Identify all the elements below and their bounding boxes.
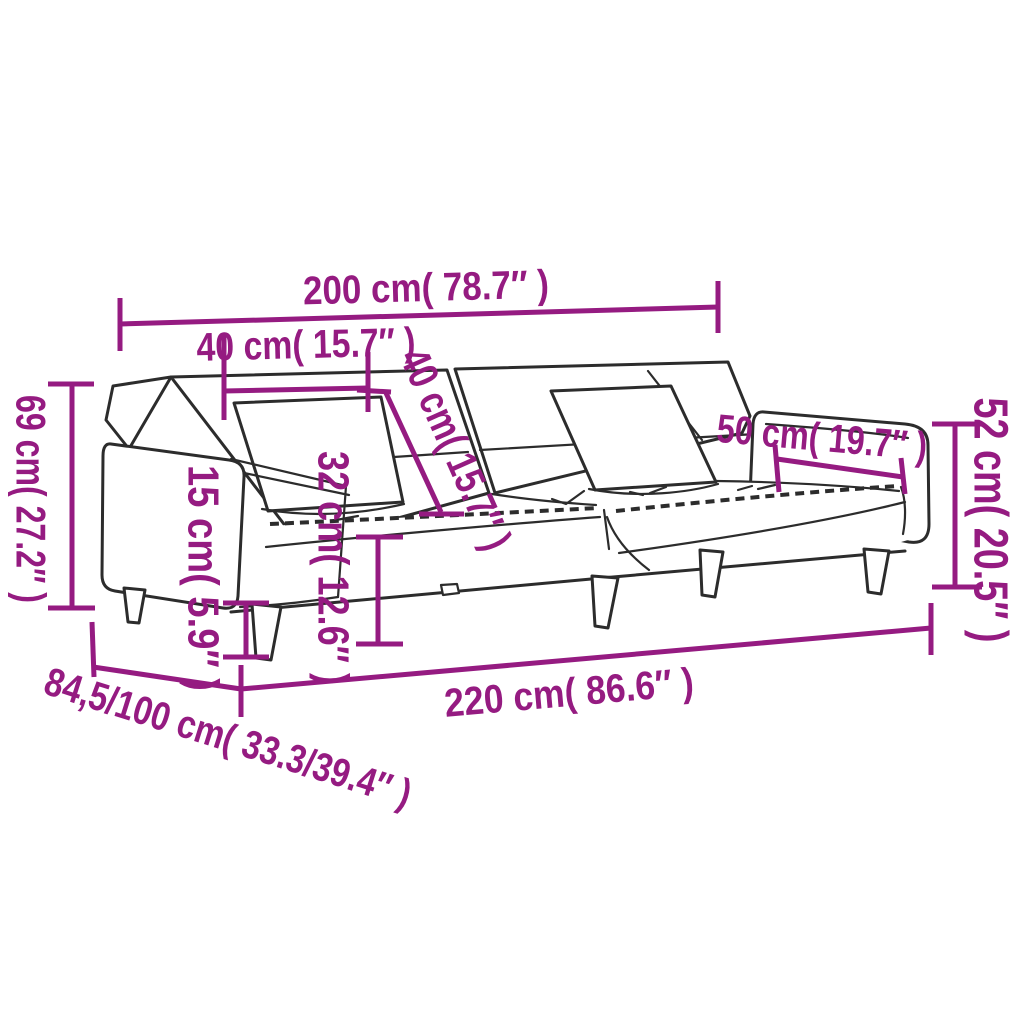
sofa-base-latch [441, 584, 459, 595]
sofa-back-left-cap [106, 377, 171, 449]
dimension-label-total-width: 200 cm( 78.7″ ) [302, 263, 549, 314]
sofa-leg [252, 604, 281, 660]
sofa-seat-back-edge-left [492, 494, 596, 505]
dimension-total-height: 69 cm( 27.2″ ) [8, 384, 96, 608]
sofa-dimension-diagram: 200 cm( 78.7″ ) 40 cm( 15.7″ ) 40 cm( 15… [0, 0, 1024, 1024]
dimension-label-seat-height: 32 cm( 12.6″ ) [309, 451, 358, 685]
diagram-canvas: 200 cm( 78.7″ ) 40 cm( 15.7″ ) 40 cm( 15… [0, 0, 1024, 1024]
dimension-backrest-height: 52 cm( 20.5″ ) [932, 398, 1017, 643]
dimension-label-leg-height: 15 cm( 5.9″ ) [179, 465, 228, 691]
sofa-leg [700, 550, 723, 597]
dimension-label-armrest-width: 40 cm( 15.7″ ) [196, 320, 416, 370]
sofa-leg [864, 549, 889, 594]
sofa-leg [124, 588, 145, 623]
dimension-label-backrest-height: 52 cm( 20.5″ ) [964, 398, 1017, 643]
sofa-leg [592, 576, 618, 628]
dimension-label-armrest-inner-width: 50 cm( 19.7″ ) [715, 407, 929, 469]
dimension-label-total-height: 69 cm( 27.2″ ) [8, 395, 55, 603]
